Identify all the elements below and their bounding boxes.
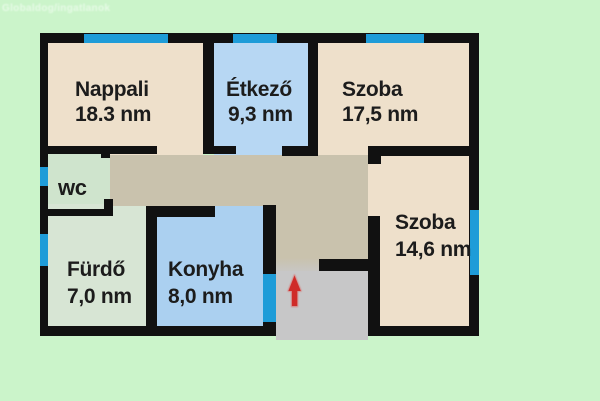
svg-text:14,6 nm: 14,6 nm <box>395 238 471 261</box>
svg-text:Nappali: Nappali <box>75 78 149 101</box>
svg-text:18.3 nm: 18.3 nm <box>75 103 151 126</box>
svg-text:wc: wc <box>57 175 87 200</box>
svg-text:Globaldog/ingatlanok: Globaldog/ingatlanok <box>2 3 110 14</box>
svg-text:Fürdő: Fürdő <box>67 258 125 281</box>
svg-text:Étkező: Étkező <box>226 78 292 101</box>
svg-text:Szoba: Szoba <box>395 211 456 234</box>
svg-text:8,0 nm: 8,0 nm <box>168 285 233 308</box>
svg-text:Konyha: Konyha <box>168 258 244 281</box>
svg-text:9,3 nm: 9,3 nm <box>228 103 293 126</box>
svg-text:7,0 nm: 7,0 nm <box>67 285 132 308</box>
svg-text:17,5 nm: 17,5 nm <box>342 103 418 126</box>
svg-text:Szoba: Szoba <box>342 78 403 101</box>
